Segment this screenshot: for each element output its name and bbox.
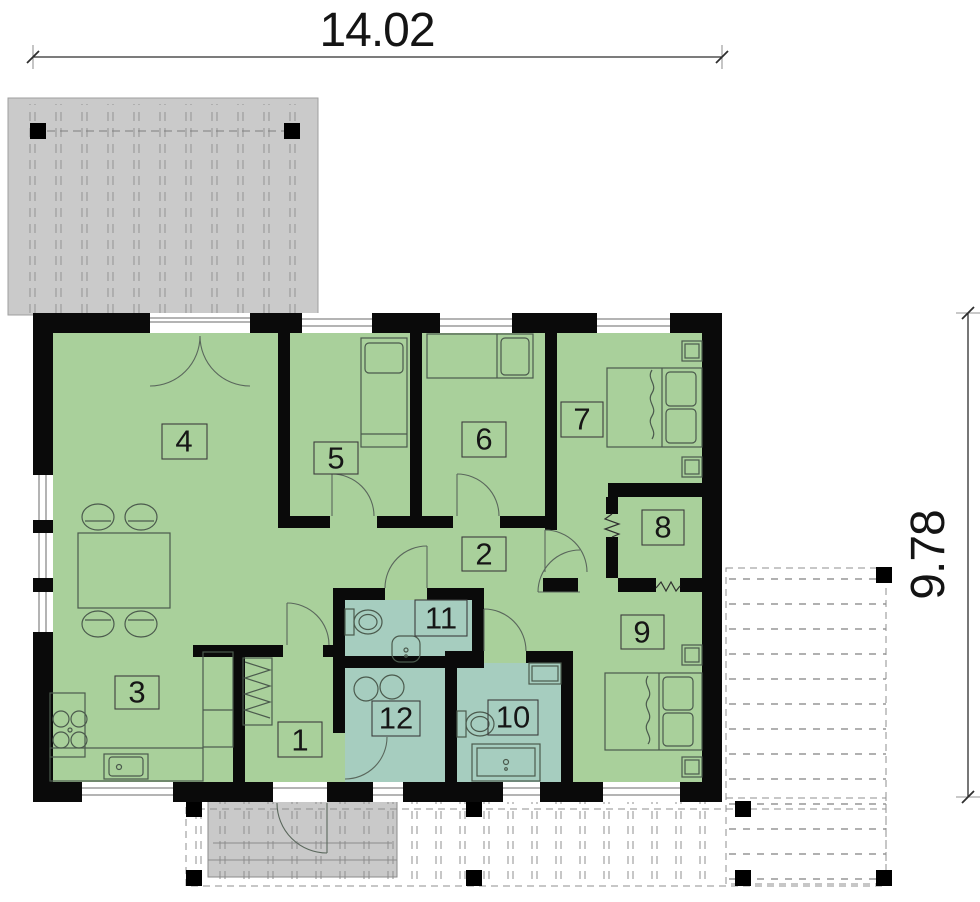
room-11-number: 11 — [425, 601, 457, 636]
terrace-post — [735, 870, 751, 886]
room-9-number: 9 — [633, 615, 650, 650]
terrace-post — [466, 801, 482, 817]
carport-post — [284, 123, 300, 139]
room-label-12: 12 — [372, 701, 420, 737]
dimension-height: 9.78 — [902, 307, 980, 803]
window — [82, 782, 173, 802]
terrace-post — [735, 801, 751, 817]
window — [302, 313, 372, 333]
dimension-width-value: 14.02 — [319, 4, 434, 57]
room-3-number: 3 — [128, 675, 145, 710]
room-4-number: 4 — [175, 424, 192, 459]
terrace-post — [876, 567, 892, 583]
carport-post — [30, 123, 46, 139]
window — [440, 313, 512, 333]
dimension-width: 14.02 — [27, 4, 728, 69]
room-10-number: 10 — [496, 700, 530, 735]
room-7-number: 7 — [573, 402, 590, 437]
window — [503, 782, 540, 802]
room-12-number: 12 — [379, 701, 413, 736]
terrace-post — [876, 870, 892, 886]
entrance-opening — [273, 782, 327, 802]
terrace-post — [186, 870, 202, 886]
room-8-number: 8 — [654, 510, 671, 545]
window — [33, 592, 53, 632]
room-2-number: 2 — [475, 537, 492, 572]
room-1-number: 1 — [291, 723, 308, 758]
terrace-post — [186, 801, 202, 817]
terrace-post — [466, 870, 482, 886]
window — [33, 475, 53, 520]
dimension-height-value: 9.78 — [902, 510, 955, 599]
floor-plan-page: 1 2 3 4 5 6 7 8 9 10 11 12 14.02 — [0, 0, 980, 902]
room-5-number: 5 — [327, 441, 344, 476]
window — [603, 782, 680, 802]
window — [33, 533, 53, 578]
terrace-right — [726, 568, 886, 886]
window — [373, 782, 403, 802]
floor-plan-drawing: 1 2 3 4 5 6 7 8 9 10 11 12 14.02 — [0, 0, 980, 902]
window — [597, 313, 670, 333]
room-6-number: 6 — [475, 422, 492, 457]
carport — [8, 98, 318, 315]
